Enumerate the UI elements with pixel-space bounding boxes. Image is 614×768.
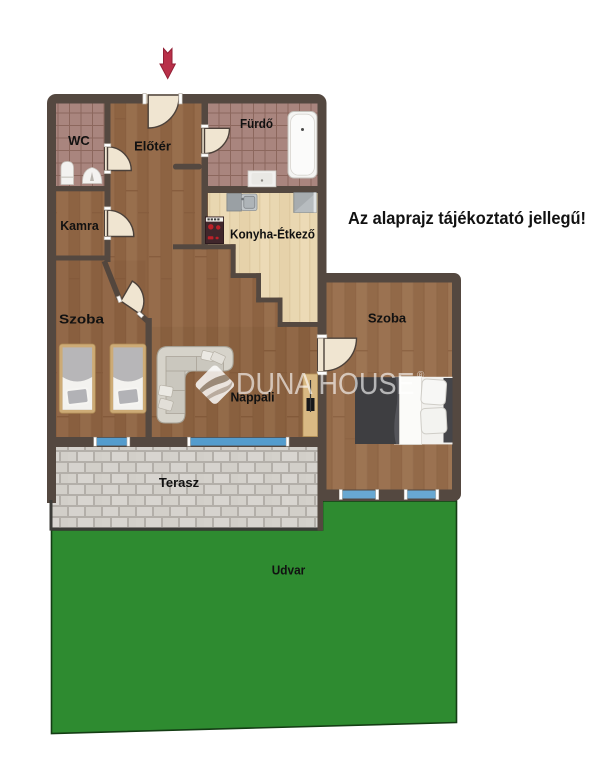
svg-text:®: ® <box>417 370 425 381</box>
svg-text:Udvar: Udvar <box>272 563 306 578</box>
svg-text:Konyha-Étkező: Konyha-Étkező <box>230 227 315 242</box>
svg-text:Terasz: Terasz <box>159 475 200 490</box>
svg-text:WC: WC <box>68 133 90 148</box>
svg-text:Szoba: Szoba <box>59 312 105 327</box>
svg-text:Az alaprajz tájékoztató jelleg: Az alaprajz tájékoztató jellegű! <box>348 208 586 228</box>
svg-text:Szoba: Szoba <box>368 311 407 326</box>
svg-text:Nappali: Nappali <box>231 390 275 405</box>
svg-text:Előtér: Előtér <box>134 139 171 154</box>
svg-text:Fürdő: Fürdő <box>240 116 273 131</box>
svg-text:Kamra: Kamra <box>60 218 99 233</box>
